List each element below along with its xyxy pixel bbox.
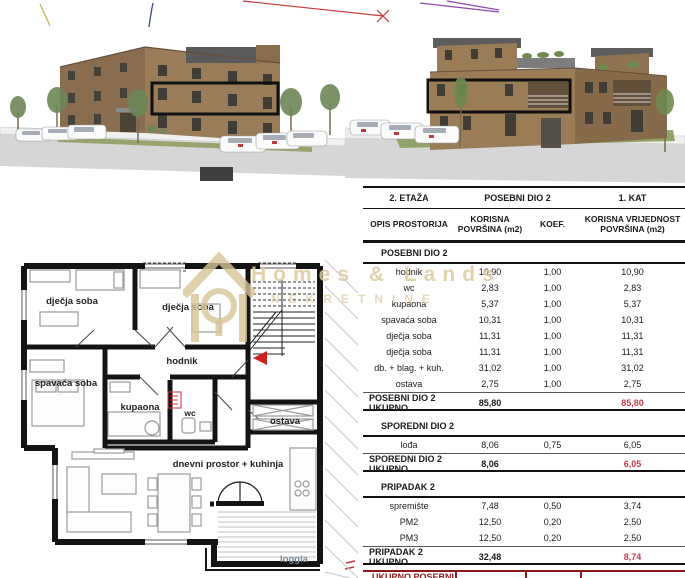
property-sheet: dječja soba dječja soba spavaća soba hod… [0, 0, 685, 578]
room-label-wc: wc [183, 408, 196, 418]
room-label-child1: dječja soba [46, 296, 98, 307]
entry-arrow [253, 351, 267, 365]
room-label-living: dnevni prostor + kuhinja [173, 459, 284, 470]
floor-plan: dječja soba dječja soba spavaća soba hod… [10, 252, 360, 578]
room-label-loggia: loggia [280, 554, 309, 565]
room-label-child2: dječja soba [162, 302, 214, 313]
staircase [250, 280, 315, 365]
room-label-storage: ostava [270, 416, 301, 427]
room-label-bathroom: kupaona [120, 402, 160, 413]
room-label-hall: hodnik [166, 356, 198, 367]
room-label-bedroom: spavaća soba [35, 378, 98, 389]
